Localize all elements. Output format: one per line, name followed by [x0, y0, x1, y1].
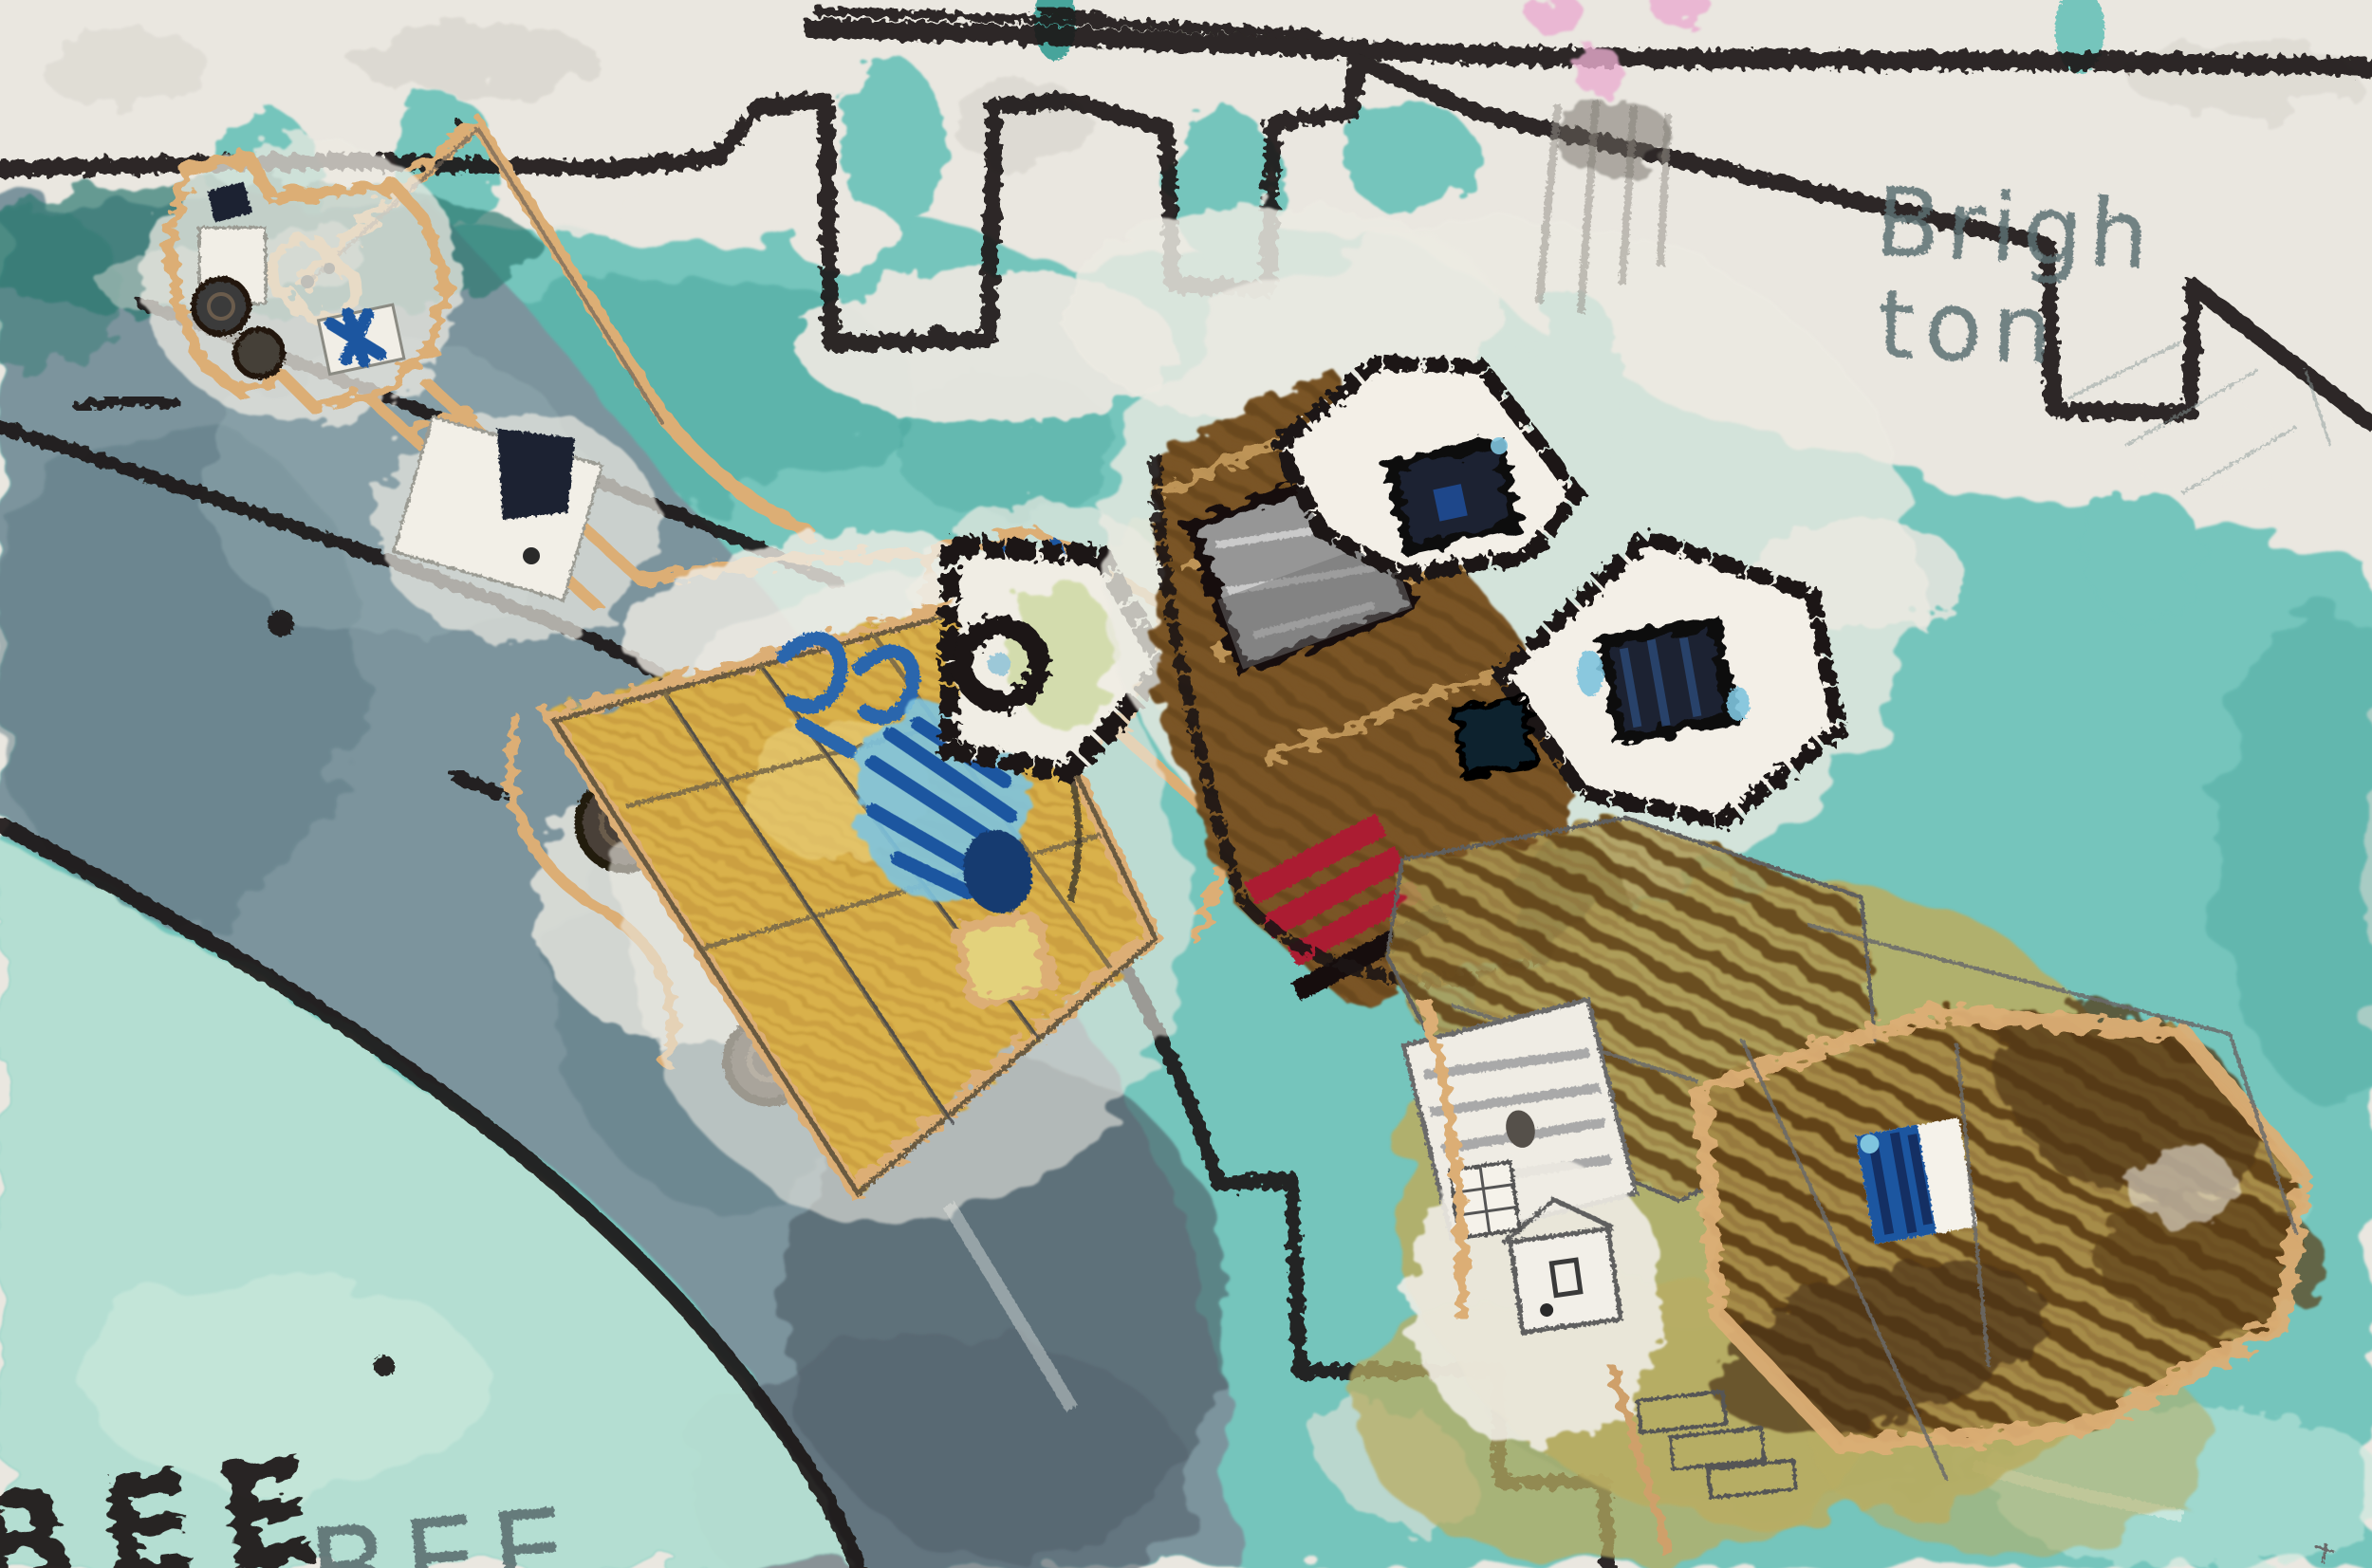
small-navy-window — [1455, 699, 1533, 775]
place-label-line2: ton — [1876, 268, 2064, 386]
flag-blue-island — [1856, 1117, 1977, 1244]
fairground-ride-upper-left — [142, 138, 465, 422]
carousel-navy-flag — [497, 429, 575, 520]
deck-corner-panel — [955, 913, 1051, 1005]
painting-photo: Brigh ton BEE BEE — [0, 0, 2372, 1568]
brighton-painting: Brigh ton BEE BEE — [0, 0, 2372, 1568]
